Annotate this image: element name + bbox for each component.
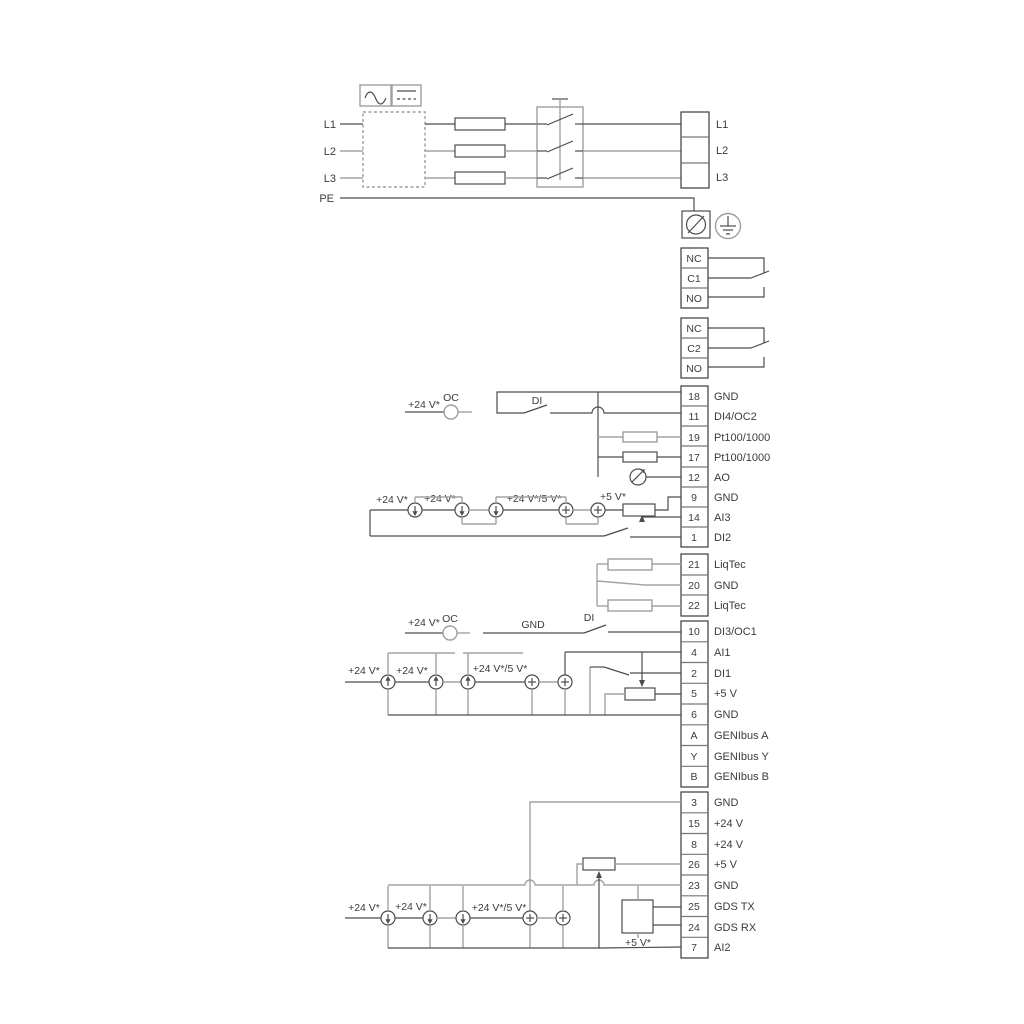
plus24-label: +24 V* (396, 665, 428, 677)
current-source-up-icon (429, 675, 443, 689)
terminal-number: 20 (688, 580, 700, 592)
di2-switch-icon (604, 528, 628, 536)
io-strip-top: 18 GND 11 DI4/OC2 19 Pt100/1000 17 Pt100… (681, 386, 770, 547)
pe-conductor (340, 198, 694, 211)
terminal-number: 5 (691, 688, 697, 700)
fuse-icon-l1 (455, 118, 505, 130)
terminal-label: LiqTec (714, 559, 746, 571)
terminal-label: GND (714, 492, 739, 504)
io-strip-mid: 10 DI3/OC1 4 AI1 2 DI1 5 +5 V 6 GND A GE… (681, 621, 769, 787)
fuse-icon-l3 (455, 172, 505, 184)
terminal-number: 14 (688, 512, 700, 524)
ai2-gds-wiring: +24 V* +24 V* +24 V*/5 V* (345, 802, 681, 949)
relay2-c2: C2 (687, 343, 701, 355)
terminal-number: 24 (688, 922, 700, 934)
terminal-number: 17 (688, 452, 700, 464)
terminal-number: 11 (689, 411, 700, 423)
relay1-nc: NC (686, 253, 702, 265)
terminal-number: 1 (691, 532, 697, 544)
current-source-down-icon (423, 911, 437, 925)
terminal-label: GDS RX (714, 922, 757, 934)
terminal-label: DI1 (714, 668, 731, 680)
terminal-number: 12 (688, 472, 700, 484)
terminal-number: 21 (688, 559, 700, 571)
voltage-source-icon (523, 911, 537, 925)
terminal-number: 6 (691, 709, 697, 721)
pt100-sensor-icon (623, 452, 657, 462)
emc-filter-box (363, 112, 425, 187)
terminal-label: Pt100/1000 (714, 432, 770, 444)
terminal-label: GND (714, 797, 739, 809)
relay1-c1: C1 (687, 273, 701, 285)
plus24-label: +24 V* (408, 617, 440, 629)
terminal-number: 7 (691, 942, 697, 954)
power-input-section: L1 L2 L3 PE (319, 85, 740, 239)
terminal-label: GND (714, 580, 739, 592)
plus5-label: +5 V* (600, 491, 626, 503)
relay2-section: NC C2 NO (681, 318, 769, 378)
plus24-label: +24 V* (348, 665, 380, 677)
voltage-source-icon (525, 675, 539, 689)
power-input-l1: L1 (324, 119, 336, 131)
relay2-nc: NC (686, 323, 702, 335)
terminal-number: 23 (688, 880, 700, 892)
terminal-label: GENIbus Y (714, 751, 769, 763)
terminal-number: 10 (688, 626, 700, 638)
di4-pt-ao-wiring: +24 V* OC DI (405, 392, 681, 485)
terminal-label: GND (714, 391, 739, 403)
plus24-label: +24 V* (376, 494, 408, 506)
terminal-label: DI3/OC1 (714, 626, 757, 638)
terminal-label: +24 V (714, 839, 744, 851)
terminal-label: Pt100/1000 (714, 452, 770, 464)
power-output-l1: L1 (716, 119, 728, 131)
terminal-label: +5 V (714, 688, 738, 700)
plus24-5-label: +24 V*/5 V* (473, 663, 528, 675)
power-input-l2: L2 (324, 146, 336, 158)
gnd-feed-wire (530, 802, 681, 911)
disconnect-switch-icon (537, 99, 583, 187)
terminal-label: DI4/OC2 (714, 411, 757, 423)
terminal-number: 18 (688, 391, 700, 403)
terminal-number: 15 (688, 818, 700, 830)
terminal-label: AI2 (714, 942, 731, 954)
io-strip-bottom: 3 GND 15 +24 V 8 +24 V 26 +5 V 23 GND 25… (681, 792, 757, 958)
oc-label: OC (442, 613, 458, 625)
terminal-label: DI2 (714, 532, 731, 544)
terminal-label: GENIbus B (714, 771, 769, 783)
open-collector-icon (443, 626, 457, 640)
current-source-down-icon (456, 911, 470, 925)
ai1-di1-wiring: +24 V* +24 V* +24 V*/5 V* (345, 652, 681, 715)
protective-earth-icon (716, 214, 741, 239)
terminal-number: 3 (691, 797, 697, 809)
fuse-icon-l2 (455, 145, 505, 157)
power-input-pe: PE (319, 193, 334, 205)
plus5-label: +5 V* (625, 937, 651, 949)
potentiometer-icon (625, 688, 655, 700)
terminal-label: GDS TX (714, 901, 755, 913)
oc-label: OC (443, 392, 459, 404)
terminal-number: 9 (691, 492, 697, 504)
di1-switch-icon (604, 667, 629, 675)
gnd-label: GND (521, 619, 545, 631)
gds-sensor-module: +5 V* (622, 886, 681, 949)
terminal-label: AI1 (714, 647, 731, 659)
plus24-5-label: +24 V*/5 V* (507, 493, 562, 505)
relay2-no: NO (686, 363, 702, 375)
terminal-label: AO (714, 472, 730, 484)
gds-sensor-icon (622, 900, 653, 933)
current-source-down-icon (408, 503, 422, 517)
terminal-number: 25 (688, 901, 700, 913)
liqtec-sensor-wiring (597, 559, 681, 611)
terminal-number: 4 (691, 647, 697, 659)
terminal-label: GND (714, 709, 739, 721)
power-output-l3: L3 (716, 172, 728, 184)
wiper-arrow-icon (639, 680, 645, 687)
plus24-5-label: +24 V*/5 V* (472, 902, 527, 914)
current-source-up-icon (461, 675, 475, 689)
terminal-number: A (690, 730, 697, 742)
relay1-no: NO (686, 293, 702, 305)
terminal-label: AI3 (714, 512, 731, 524)
ac-wave-icon (360, 85, 391, 106)
terminal-label: GND (714, 880, 739, 892)
terminal-number: 2 (691, 668, 697, 680)
voltage-source-icon (559, 503, 573, 517)
di3-switch-icon (584, 625, 606, 633)
current-source-down-icon (455, 503, 469, 517)
terminal-number: 19 (688, 432, 700, 444)
screw-terminal-icon (682, 211, 710, 238)
terminal-label: +24 V (714, 818, 744, 830)
power-input-l3: L3 (324, 173, 336, 185)
plus24-label: +24 V* (408, 399, 440, 411)
terminal-label: LiqTec (714, 600, 746, 612)
current-source-down-icon (489, 503, 503, 517)
voltage-source-icon (556, 911, 570, 925)
voltage-source-icon (591, 503, 605, 517)
wiring-diagram: L1 L2 L3 PE (0, 0, 1024, 1024)
gnd-bus-wire (388, 880, 681, 885)
voltage-source-icon (558, 675, 572, 689)
relay2-contact-icon (708, 328, 769, 367)
terminal-number: B (690, 771, 697, 783)
terminal-label: GENIbus A (714, 730, 769, 742)
dc-line-icon (392, 85, 421, 106)
plus24-label: +24 V* (424, 493, 456, 505)
liqtec-sensor-icon (608, 600, 652, 611)
terminal-number: 26 (688, 859, 700, 871)
power-output-l2: L2 (716, 145, 728, 157)
mains-terminal-block (681, 112, 709, 188)
liqtec-sensor-icon (608, 559, 652, 570)
ai3-di2-wiring: +24 V* +24 V* +24 V*/5 V* +5 V* (370, 491, 681, 537)
current-source-up-icon (381, 675, 395, 689)
plus24-label: +24 V* (348, 902, 380, 914)
terminal-number: 8 (691, 839, 697, 851)
analog-output-meter-icon (630, 469, 646, 485)
liqtec-strip: 21 LiqTec 20 GND 22 LiqTec (597, 554, 746, 616)
pt100-sensor-icon (623, 432, 657, 442)
plus24-label: +24 V* (395, 901, 427, 913)
di-label: DI (584, 612, 595, 624)
terminal-label: +5 V (714, 859, 738, 871)
relay1-contact-icon (708, 258, 769, 297)
wiring-diagram-page: L1 L2 L3 PE (0, 0, 1024, 1024)
di3-wiring: +24 V* OC GND DI (405, 612, 681, 640)
di-label: DI (532, 395, 543, 407)
terminal-number: 22 (688, 600, 700, 612)
potentiometer-icon (623, 504, 655, 516)
relay1-section: NC C1 NO (681, 248, 769, 308)
potentiometer-icon (583, 858, 615, 870)
wiper-arrow-icon (596, 871, 602, 878)
terminal-number: Y (690, 751, 697, 763)
current-source-down-icon (381, 911, 395, 925)
open-collector-icon (444, 405, 458, 419)
